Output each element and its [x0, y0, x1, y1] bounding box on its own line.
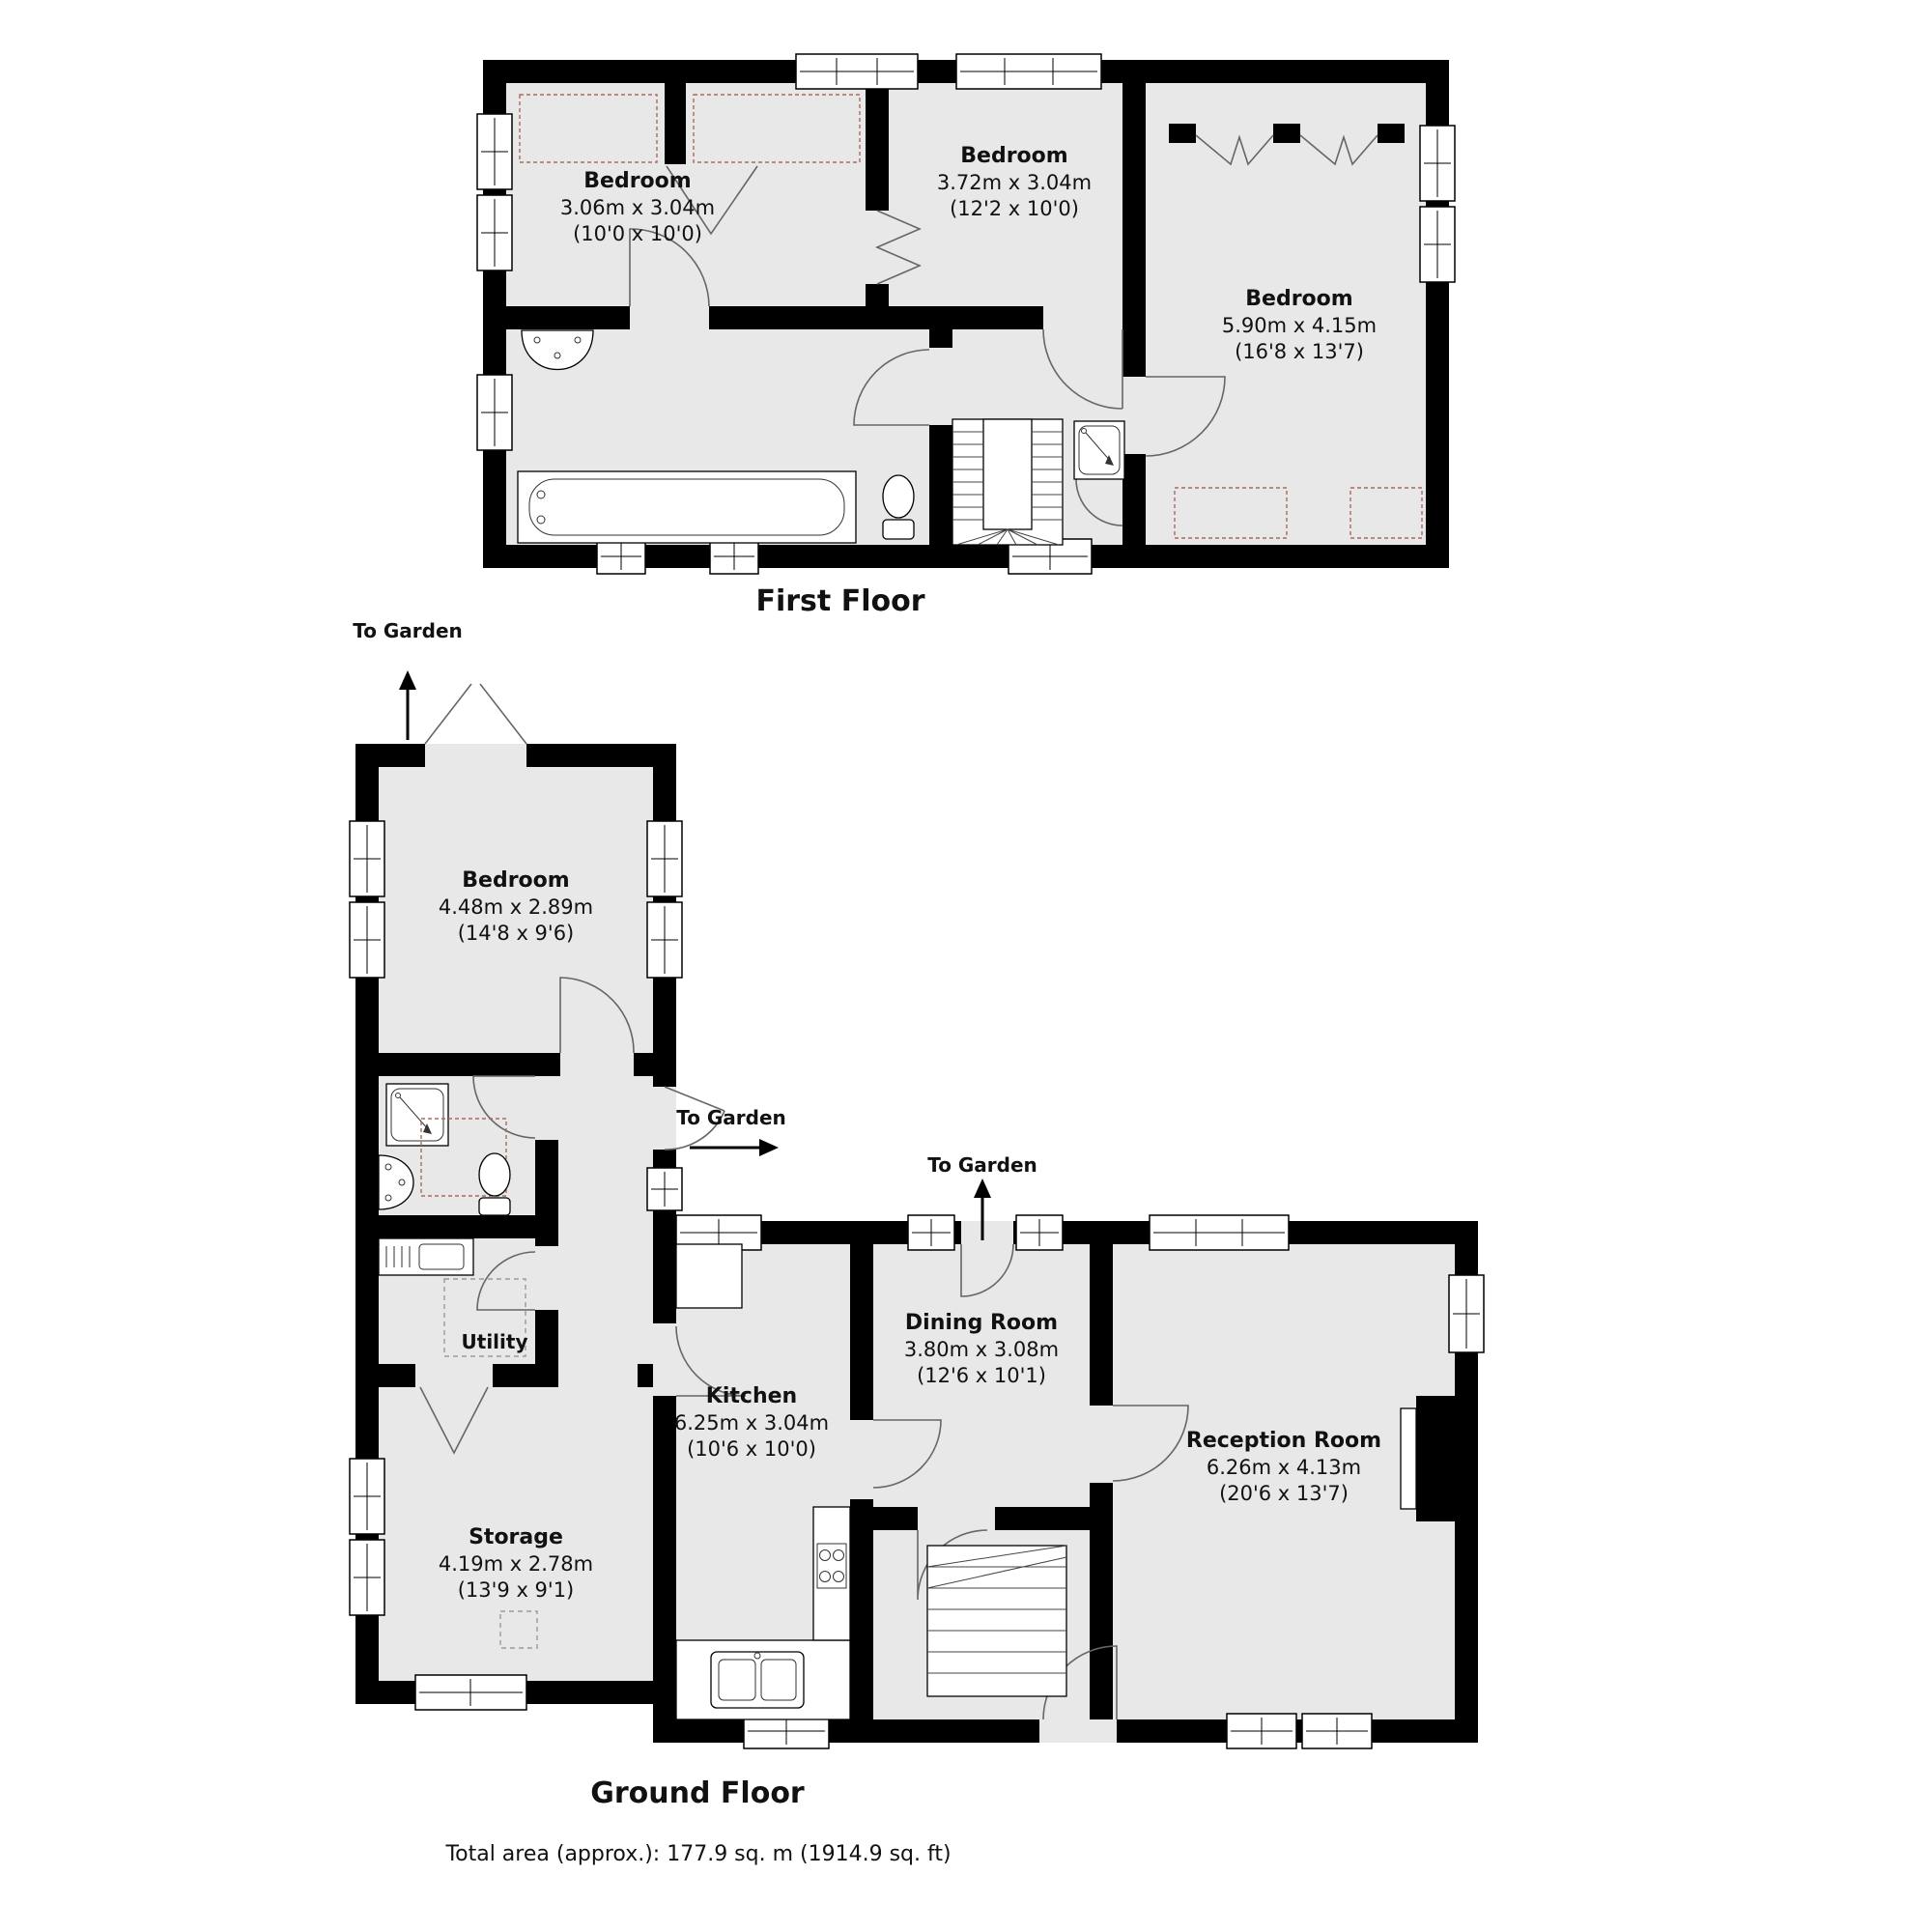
staircase [927, 1546, 1066, 1696]
room-label-name: Bedroom [960, 144, 1067, 168]
room-label-name: Bedroom [1245, 287, 1352, 311]
room-label-name: Storage [469, 1525, 563, 1549]
garden-arrow-right-hall [690, 1139, 779, 1156]
arrowhead-icon [974, 1179, 991, 1198]
room-label-name: Bedroom [583, 169, 691, 193]
ground-floor-title: Ground Floor [590, 1776, 805, 1810]
room-label-metric: 6.26m x 4.13m [1207, 1456, 1361, 1479]
doorway-floor [653, 1087, 676, 1150]
room-label-name: Bedroom [462, 868, 569, 893]
utility-sink-icon [379, 1238, 473, 1275]
room-label-imperial: (20'6 x 13'7) [1219, 1482, 1349, 1505]
room-label-imperial: (10'0 x 10'0) [573, 222, 702, 245]
room-label-imperial: (16'8 x 13'7) [1235, 340, 1364, 363]
room-label-imperial: (12'2 x 10'0) [950, 197, 1079, 220]
room-label-metric: 3.72m x 3.04m [937, 171, 1092, 194]
room-label-imperial: (10'6 x 10'0) [687, 1437, 816, 1461]
room-label-metric: 3.06m x 3.04m [560, 196, 715, 219]
doorway-floor [961, 1221, 1013, 1244]
garden-label: To Garden [676, 1106, 786, 1129]
staircase [952, 419, 1063, 545]
room-label-metric: 5.90m x 4.15m [1222, 314, 1377, 337]
room-label-metric: 4.19m x 2.78m [439, 1552, 593, 1576]
doorway-floor [425, 744, 526, 767]
room-label-metric: 6.25m x 3.04m [674, 1411, 829, 1435]
room-label-name: Kitchen [706, 1384, 797, 1408]
kitchen-sink-icon [711, 1652, 804, 1708]
doorway-floor [1039, 1719, 1117, 1743]
arrowhead-icon [759, 1139, 779, 1156]
fireplace-icon [1401, 1396, 1455, 1521]
kitchen-counter [813, 1507, 850, 1640]
toilet-icon [883, 475, 914, 539]
floorplan-page: Bedroom 3.06m x 3.04m (10'0 x 10'0) Bedr… [0, 0, 1932, 1932]
toilet-icon [479, 1153, 510, 1215]
room-label-metric: 3.80m x 3.08m [904, 1338, 1059, 1361]
arrowhead-icon [399, 670, 416, 690]
garden-arrow-up-bedroom [399, 670, 416, 740]
first-floor-title: First Floor [755, 584, 924, 618]
bath-icon [518, 471, 856, 543]
room-label-name: Utility [462, 1330, 528, 1353]
floorplan-drawing: Bedroom 3.06m x 3.04m (10'0 x 10'0) Bedr… [0, 0, 1932, 1932]
total-area-text: Total area (approx.): 177.9 sq. m (1914.… [444, 1842, 951, 1866]
doorway-floor [653, 1323, 676, 1396]
garden-label: To Garden [353, 619, 463, 642]
room-label-name: Reception Room [1186, 1429, 1381, 1453]
shower-icon [386, 1084, 448, 1146]
room-label-imperial: (12'6 x 10'1) [917, 1364, 1046, 1387]
shower-icon [1074, 421, 1124, 479]
appliance-unit [676, 1244, 742, 1308]
garden-label: To Garden [927, 1153, 1037, 1177]
room-label-name: Dining Room [905, 1311, 1058, 1335]
ground-floor-plan: To Garden To Garden To Garden Bedroom 4.… [350, 619, 1484, 1810]
room-label-imperial: (13'9 x 9'1) [458, 1578, 575, 1602]
room-label-imperial: (14'8 x 9'6) [458, 922, 575, 945]
first-floor-plan: Bedroom 3.06m x 3.04m (10'0 x 10'0) Bedr… [477, 54, 1455, 618]
room-label-metric: 4.48m x 2.89m [439, 895, 593, 919]
